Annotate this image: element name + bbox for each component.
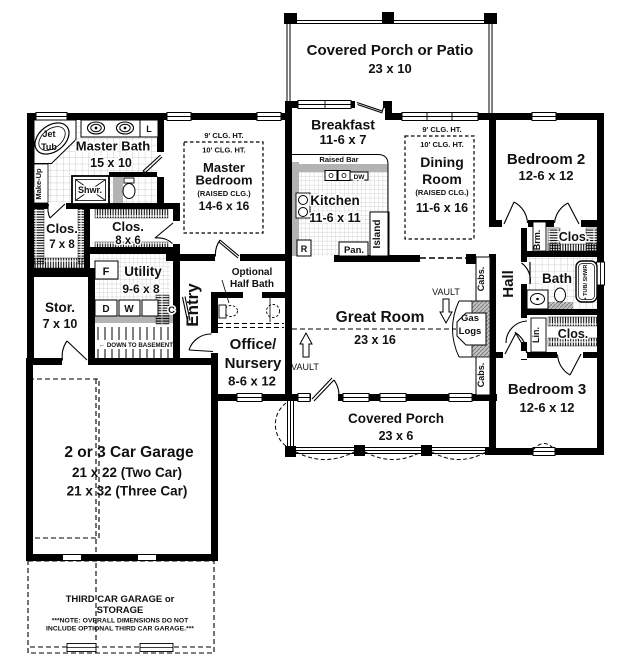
svg-text:Stor.: Stor. [45, 300, 75, 315]
svg-text:8 x 6: 8 x 6 [115, 235, 141, 247]
svg-text:21 x 22 (Two Car): 21 x 22 (Two Car) [72, 465, 182, 480]
svg-text:W: W [124, 304, 134, 315]
svg-text:← DOWN TO BASEMENT: ← DOWN TO BASEMENT [99, 342, 173, 349]
svg-text:Kitchen: Kitchen [310, 193, 360, 208]
svg-text:Logs: Logs [459, 326, 482, 337]
svg-text:12-6 x 12: 12-6 x 12 [520, 400, 575, 415]
svg-text:Cabs.: Cabs. [476, 267, 486, 292]
svg-text:D: D [102, 304, 109, 315]
svg-text:Hall: Hall [500, 270, 517, 298]
svg-text:Covered Porch or Patio: Covered Porch or Patio [307, 42, 474, 59]
svg-text:C: C [168, 305, 175, 316]
svg-text:Clos.: Clos. [559, 230, 590, 244]
svg-text:Pan.: Pan. [344, 245, 364, 256]
svg-text:(RAISED CLG.): (RAISED CLG.) [415, 188, 469, 197]
svg-text:21 x 32 (Three Car): 21 x 32 (Three Car) [67, 484, 188, 499]
svg-text:R: R [301, 244, 308, 254]
svg-text:7 x 10: 7 x 10 [43, 317, 78, 331]
svg-text:Cabs.: Cabs. [476, 363, 486, 388]
svg-text:Great Room: Great Room [336, 309, 425, 326]
svg-text:• TUB/ SHWR: • TUB/ SHWR [583, 265, 589, 300]
svg-text:Lin.: Lin. [531, 327, 541, 343]
svg-text:23 x 6: 23 x 6 [379, 429, 414, 443]
svg-text:Utility: Utility [124, 264, 162, 279]
svg-text:9' CLG. HT.: 9' CLG. HT. [204, 131, 243, 140]
svg-text:Island: Island [372, 220, 383, 249]
svg-text:VAULT: VAULT [291, 362, 319, 372]
svg-text:10' CLG. HT.: 10' CLG. HT. [202, 146, 245, 155]
svg-text:F: F [103, 266, 110, 278]
svg-text:23 x 16: 23 x 16 [354, 333, 396, 347]
svg-text:11-6 x 11: 11-6 x 11 [309, 211, 360, 225]
svg-text:11-6 x 7: 11-6 x 7 [320, 132, 367, 147]
svg-text:Breakfast: Breakfast [311, 117, 375, 133]
svg-text:Bedroom 2: Bedroom 2 [507, 151, 585, 168]
svg-text:Bedroom 3: Bedroom 3 [508, 381, 586, 398]
svg-text:Jet: Jet [42, 129, 55, 139]
svg-text:Tub: Tub [41, 142, 57, 152]
svg-text:Nursery: Nursery [225, 355, 282, 372]
svg-text:Clos.: Clos. [558, 327, 589, 341]
svg-text:12-6 x 12: 12-6 x 12 [519, 168, 574, 183]
svg-text:VAULT: VAULT [432, 287, 460, 297]
svg-text:10' CLG. HT.: 10' CLG. HT. [420, 140, 463, 149]
svg-text:Room: Room [422, 171, 462, 187]
svg-text:7 x 8: 7 x 8 [49, 239, 75, 251]
svg-text:23 x 10: 23 x 10 [368, 61, 411, 76]
svg-text:Optional: Optional [232, 267, 273, 278]
svg-text:Master Bath: Master Bath [76, 139, 150, 154]
svg-text:Bath: Bath [542, 271, 572, 286]
svg-text:2 or 3 Car Garage: 2 or 3 Car Garage [64, 444, 194, 461]
svg-text:Bedroom: Bedroom [195, 173, 252, 188]
svg-text:INCLUDE OPTIONAL THIRD CAR GAR: INCLUDE OPTIONAL THIRD CAR GARAGE.*** [46, 626, 194, 633]
svg-text:***NOTE: OVERALL DIMENSIONS DO: ***NOTE: OVERALL DIMENSIONS DO NOT [52, 618, 189, 625]
svg-text:Dining: Dining [420, 154, 464, 170]
svg-text:Gas: Gas [461, 313, 479, 324]
svg-text:Make-Up: Make-Up [34, 168, 43, 200]
svg-text:STORAGE: STORAGE [97, 605, 144, 616]
svg-text:14-6 x 16: 14-6 x 16 [199, 199, 250, 213]
svg-text:Clos.: Clos. [46, 221, 78, 236]
svg-text:Covered Porch: Covered Porch [348, 411, 444, 426]
svg-text:DW: DW [354, 174, 366, 181]
svg-text:11-6 x 16: 11-6 x 16 [416, 201, 468, 215]
svg-text:15 x 10: 15 x 10 [90, 156, 132, 170]
svg-text:9' CLG. HT.: 9' CLG. HT. [422, 125, 461, 134]
svg-text:Half Bath: Half Bath [230, 279, 274, 290]
svg-text:THIRD CAR GARAGE or: THIRD CAR GARAGE or [66, 594, 175, 605]
svg-text:(RAISED CLG.): (RAISED CLG.) [197, 189, 251, 198]
svg-text:L: L [146, 124, 152, 134]
svg-text:Clos.: Clos. [112, 219, 144, 234]
svg-text:9-6 x 8: 9-6 x 8 [122, 282, 160, 296]
svg-text:Raised Bar: Raised Bar [319, 155, 358, 164]
svg-text:Shwr.: Shwr. [78, 185, 102, 195]
svg-text:Office/: Office/ [230, 336, 278, 353]
svg-text:Brm.: Brm. [532, 230, 542, 251]
svg-text:Entry: Entry [183, 283, 202, 327]
svg-text:8-6 x 12: 8-6 x 12 [228, 374, 276, 389]
